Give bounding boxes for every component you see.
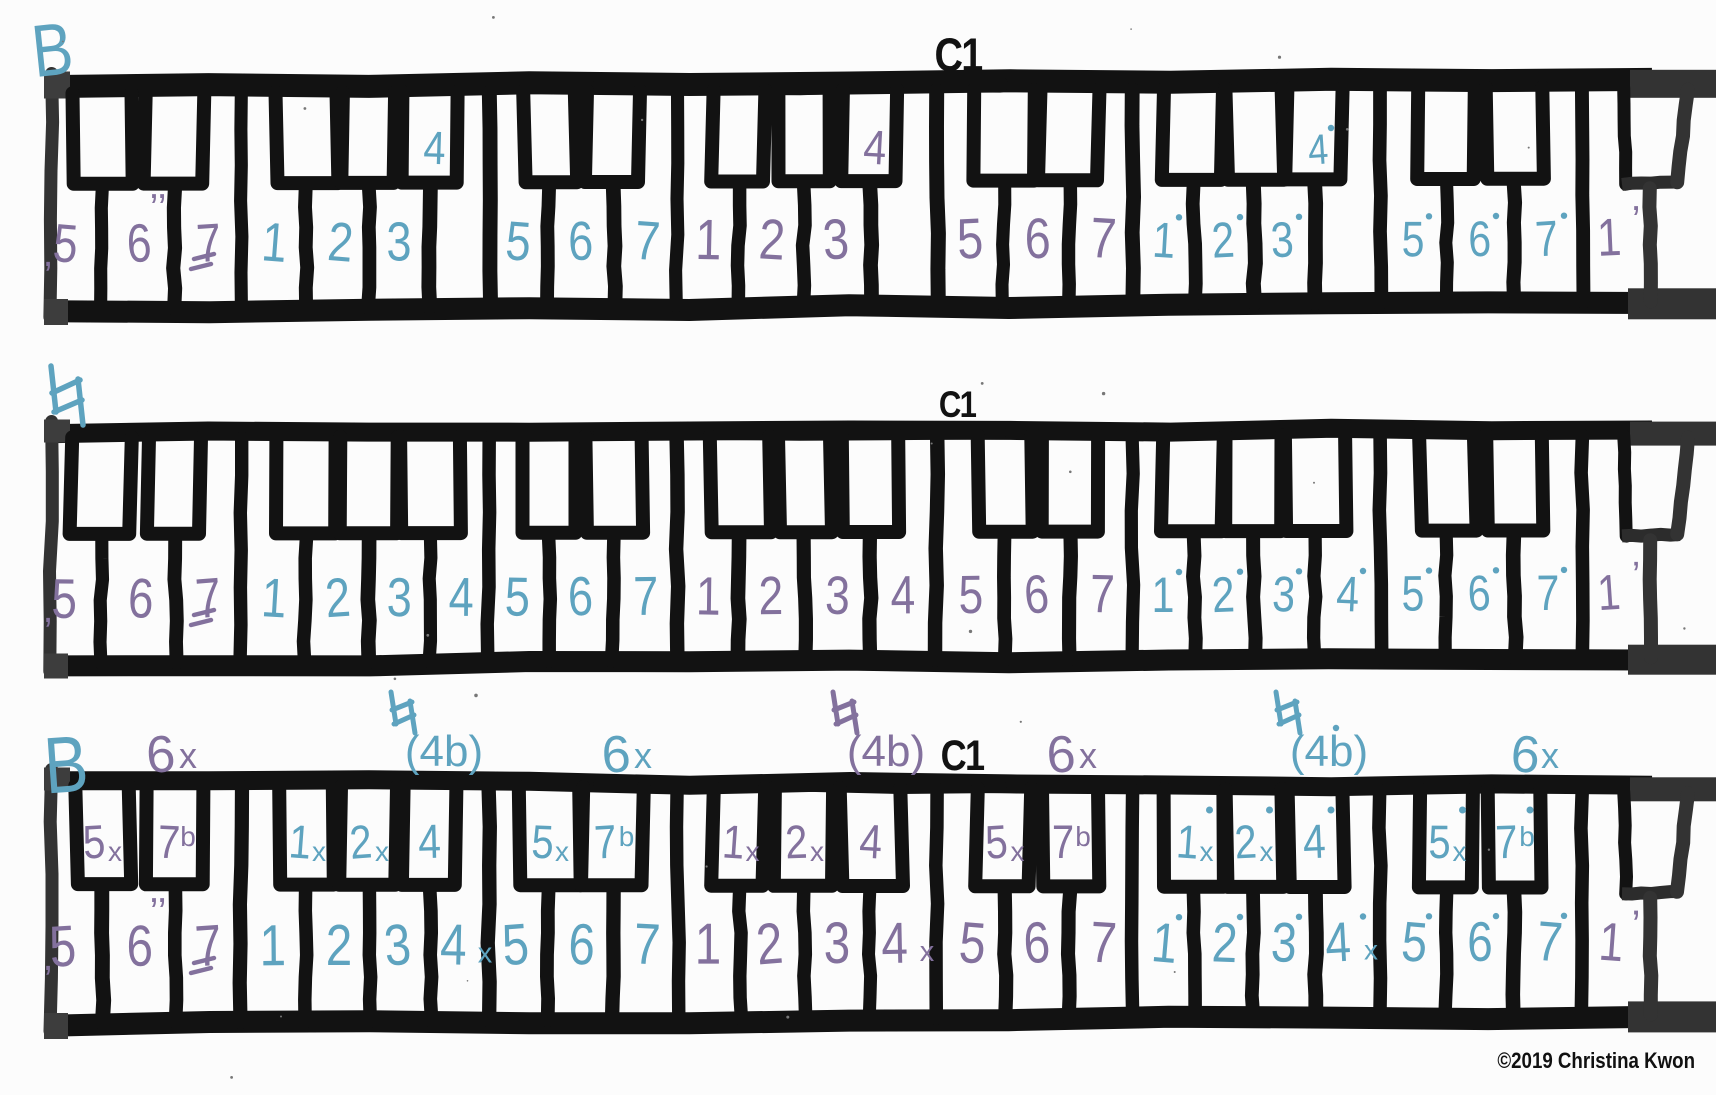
svg-text:4: 4 [1335, 566, 1361, 623]
svg-text:x: x [1011, 836, 1025, 867]
svg-text:7: 7 [1495, 817, 1519, 869]
svg-text:2: 2 [757, 208, 786, 273]
svg-text:©2019 Christina Kwon: ©2019 Christina Kwon [1497, 1050, 1695, 1074]
svg-text:(4b): (4b) [405, 727, 483, 776]
svg-text:5: 5 [957, 910, 988, 976]
svg-text:b: b [619, 821, 635, 852]
svg-text:4: 4 [1302, 816, 1327, 870]
svg-text:4: 4 [1324, 910, 1353, 974]
svg-text:x: x [108, 836, 122, 867]
svg-text:x: x [920, 936, 935, 968]
svg-text:1: 1 [1596, 564, 1623, 621]
svg-text:7: 7 [632, 912, 662, 978]
svg-text:1: 1 [721, 816, 747, 869]
svg-text:4: 4 [448, 565, 474, 628]
svg-text:2: 2 [1211, 911, 1239, 974]
svg-text:5: 5 [984, 816, 1009, 869]
svg-text:1: 1 [1596, 208, 1623, 268]
svg-text:x: x [1079, 735, 1097, 776]
svg-text:B: B [41, 718, 91, 811]
svg-text:b: b [180, 821, 196, 852]
svg-text:3: 3 [824, 912, 850, 977]
svg-text:6: 6 [1466, 565, 1492, 622]
svg-text:6: 6 [1024, 207, 1051, 271]
svg-text:5: 5 [504, 565, 530, 628]
svg-text:7: 7 [156, 817, 181, 870]
svg-text:x: x [1260, 836, 1274, 867]
svg-text:x: x [555, 836, 569, 867]
svg-text:6: 6 [127, 567, 155, 630]
svg-text:2: 2 [326, 914, 353, 979]
svg-text:x: x [1200, 836, 1214, 867]
svg-text:7: 7 [1088, 910, 1118, 976]
svg-text:7: 7 [1089, 564, 1115, 625]
svg-text:1: 1 [260, 566, 289, 630]
svg-text:,: , [43, 233, 54, 275]
svg-text:4: 4 [890, 565, 915, 625]
svg-text:1: 1 [259, 914, 286, 979]
svg-text:1: 1 [1151, 212, 1177, 269]
svg-text:5: 5 [51, 567, 77, 630]
svg-text:x: x [179, 735, 197, 776]
svg-text:4: 4 [418, 816, 442, 869]
svg-text:7: 7 [633, 208, 662, 272]
svg-text:1: 1 [696, 566, 721, 626]
svg-text:’’: ’’ [149, 187, 166, 231]
svg-text:5: 5 [504, 209, 534, 273]
svg-text:’: ’ [1632, 901, 1641, 947]
svg-text:2: 2 [754, 911, 785, 977]
svg-text:1: 1 [695, 912, 722, 977]
svg-text:2: 2 [1210, 212, 1236, 269]
svg-text:3: 3 [1269, 211, 1295, 268]
svg-text:1: 1 [1152, 567, 1175, 623]
svg-text:’’: ’’ [149, 891, 166, 935]
svg-text:6: 6 [567, 912, 596, 978]
svg-text:3: 3 [382, 912, 414, 978]
svg-text:5: 5 [51, 213, 80, 275]
svg-text:5: 5 [956, 207, 985, 272]
svg-text:6: 6 [1468, 211, 1492, 267]
svg-text:B: B [28, 8, 77, 94]
svg-text:1: 1 [1175, 816, 1201, 869]
svg-text:x: x [375, 836, 389, 867]
svg-text:4: 4 [862, 119, 888, 175]
svg-text:5: 5 [82, 816, 107, 869]
svg-text:1: 1 [1149, 911, 1180, 975]
svg-text:4: 4 [423, 123, 447, 175]
svg-text:2: 2 [1211, 566, 1236, 623]
svg-text:1: 1 [1597, 912, 1626, 974]
svg-text:,: , [43, 589, 54, 631]
svg-text:2: 2 [323, 565, 352, 629]
svg-text:2: 2 [325, 210, 355, 274]
svg-text:x: x [1364, 934, 1378, 965]
svg-text:6: 6 [1022, 564, 1052, 626]
svg-text:1: 1 [695, 209, 722, 273]
svg-text:4: 4 [1307, 126, 1330, 175]
svg-text:6: 6 [1022, 910, 1052, 976]
svg-text:7: 7 [1088, 207, 1118, 272]
svg-text:7: 7 [1534, 210, 1560, 267]
svg-text:b: b [1519, 821, 1535, 852]
svg-text:x: x [478, 938, 493, 970]
svg-text:2: 2 [758, 566, 783, 626]
svg-text:3: 3 [821, 208, 851, 273]
svg-text:5: 5 [1402, 211, 1425, 267]
svg-text:7: 7 [1052, 817, 1074, 869]
svg-text:3: 3 [824, 565, 850, 626]
svg-text:2: 2 [348, 816, 374, 869]
svg-text:6: 6 [567, 209, 593, 272]
svg-text:5: 5 [958, 565, 983, 625]
svg-text:2: 2 [1233, 817, 1258, 870]
svg-text:5: 5 [1399, 910, 1430, 974]
svg-text:4: 4 [439, 913, 467, 978]
svg-text:7: 7 [1534, 909, 1564, 973]
svg-text:3: 3 [1270, 911, 1299, 975]
svg-text:6: 6 [1045, 725, 1077, 785]
svg-text:1: 1 [260, 210, 290, 274]
svg-text:5: 5 [1401, 566, 1424, 622]
svg-text:C1: C1 [939, 385, 977, 426]
svg-text:5: 5 [500, 912, 531, 978]
svg-text:7: 7 [633, 564, 659, 627]
svg-text:(4b): (4b) [847, 727, 925, 776]
svg-text:2: 2 [784, 817, 808, 870]
svg-text:’: ’ [1632, 198, 1641, 242]
svg-text:6: 6 [1509, 725, 1542, 785]
svg-text:5: 5 [530, 817, 555, 870]
svg-text:’: ’ [1632, 554, 1640, 596]
svg-text:x: x [1541, 735, 1559, 776]
svg-text:(4b): (4b) [1290, 727, 1368, 776]
svg-text:5: 5 [1428, 817, 1450, 869]
svg-text:4: 4 [881, 911, 909, 976]
svg-text:6: 6 [600, 725, 632, 785]
svg-text:4: 4 [858, 815, 884, 869]
svg-text:x: x [312, 836, 326, 867]
svg-text:C1: C1 [934, 30, 982, 82]
svg-text:6: 6 [567, 564, 594, 627]
svg-text:6: 6 [1467, 911, 1493, 973]
svg-text:7: 7 [593, 816, 618, 869]
svg-text:3: 3 [1271, 566, 1296, 623]
svg-text:1: 1 [287, 816, 313, 869]
svg-text:6: 6 [144, 725, 177, 785]
svg-text:x: x [746, 836, 760, 867]
svg-text:,: , [43, 937, 54, 979]
svg-text:3: 3 [386, 210, 411, 272]
svg-text:b: b [1075, 821, 1091, 852]
svg-text:3: 3 [386, 566, 412, 629]
svg-text:C1: C1 [941, 732, 984, 780]
svg-text:7: 7 [1536, 565, 1559, 621]
svg-text:x: x [1453, 836, 1467, 867]
svg-text:x: x [810, 836, 824, 867]
svg-text:x: x [634, 735, 652, 776]
